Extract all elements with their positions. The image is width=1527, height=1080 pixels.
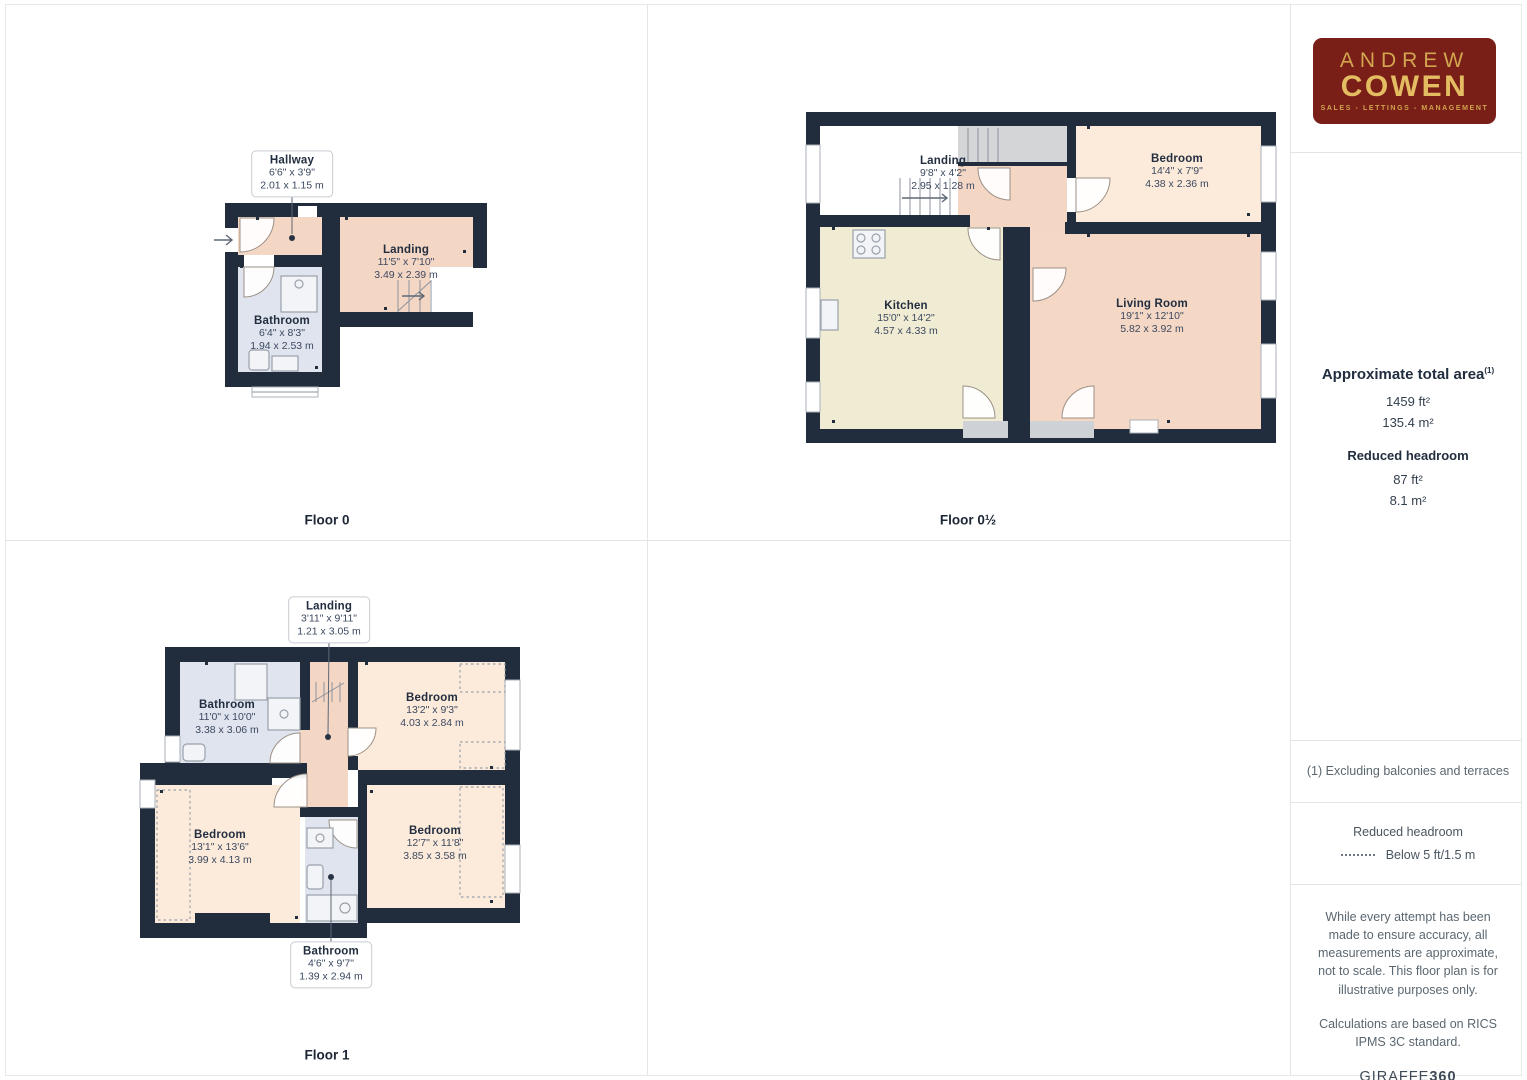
logo-name-bottom: COWEN <box>1341 71 1469 103</box>
floor0-wall-notch <box>298 206 317 217</box>
brand-text-bold: 360 <box>1429 1069 1456 1080</box>
bedroom-top-right-label: Bedroom 13'2" x 9'3" 4.03 x 2.84 m <box>400 692 464 730</box>
shower-tray-icon <box>272 356 298 371</box>
bathroom-label: Bathroom 6'4" x 8'3" 1.94 x 2.53 m <box>250 315 314 353</box>
floor0half-panel: Landing 9'8" x 4'2" 2.95 x 1.28 m Bedroo… <box>647 0 1290 540</box>
area-value-ft: 1459 ft² <box>1290 391 1526 412</box>
area-title-text: Approximate total area <box>1322 366 1485 383</box>
disclaimer-text-1: While every attempt has been made to ens… <box>1309 908 1507 999</box>
area-summary: Approximate total area(1) 1459 ft² 135.4… <box>1290 366 1526 511</box>
area-value-m: 135.4 m² <box>1290 412 1526 433</box>
headroom-value-m: 8.1 m² <box>1290 490 1526 511</box>
agency-logo: ANDREW COWEN SALES - LETTINGS - MANAGEME… <box>1313 38 1496 124</box>
bedroom-label: Bedroom 14'4" x 7'9" 4.38 x 2.36 m <box>1145 153 1209 191</box>
boiler-icon <box>821 300 838 330</box>
sink-icon <box>295 280 303 288</box>
info-sidebar: ANDREW COWEN SALES - LETTINGS - MANAGEME… <box>1290 0 1526 1080</box>
bathroom-bottom-label: Bathroom 4'6" x 9'7" 1.39 x 2.94 m <box>290 941 372 988</box>
floor0half-plan-drawing <box>647 0 1290 540</box>
floorplan-sheet: Hallway 6'6" x 3'9" 2.01 x 1.15 m Landin… <box>0 0 1527 1080</box>
headroom-legend-value: Below 5 ft/1.5 m <box>1386 848 1476 862</box>
floor0-panel: Hallway 6'6" x 3'9" 2.01 x 1.15 m Landin… <box>0 0 647 540</box>
giraffe360-logo: GIRAFFE360 <box>1290 1069 1526 1080</box>
floor0-title: Floor 0 <box>304 513 349 528</box>
dotted-line-icon <box>1341 854 1375 856</box>
floor0half-title: Floor 0½ <box>940 513 996 528</box>
landing-label: Landing 11'5" x 7'10" 3.49 x 2.39 m <box>374 244 438 282</box>
floor1-panel: Landing 3'11" x 9'11" 1.21 x 3.05 m Bath… <box>0 540 647 1075</box>
bathtub-icon <box>235 664 267 700</box>
headroom-title: Reduced headroom <box>1290 448 1526 463</box>
logo-name-top: ANDREW <box>1340 50 1469 71</box>
landing-leader-dot <box>325 734 331 740</box>
bedroom-bottom-right-label: Bedroom 12'7" x 11'8" 3.85 x 3.58 m <box>403 825 467 863</box>
floor0-plan-drawing <box>0 0 647 540</box>
headroom-legend-title: Reduced headroom <box>1353 825 1463 839</box>
sidebar-divider-1 <box>1290 152 1521 153</box>
toilet-icon <box>183 744 205 761</box>
bathroom-top-label: Bathroom 11'0" x 10'0" 3.38 x 3.06 m <box>195 699 259 737</box>
floor1-title: Floor 1 <box>304 1048 349 1063</box>
landing-label: Landing 9'8" x 4'2" 2.95 x 1.28 m <box>911 155 975 193</box>
hallway-label: Hallway 6'6" x 3'9" 2.01 x 1.15 m <box>251 150 333 197</box>
hallway-leader-dot <box>289 235 295 241</box>
bedroom-bottom-left-label: Bedroom 13'1" x 13'6" 3.99 x 4.13 m <box>188 829 252 867</box>
entry-arrow-icon <box>214 235 232 245</box>
headroom-value-ft: 87 ft² <box>1290 469 1526 490</box>
exclusion-note: (1) Excluding balconies and terraces <box>1290 740 1526 802</box>
living-room-label: Living Room 19'1" x 12'10" 5.82 x 3.92 m <box>1116 298 1188 336</box>
bathroom-leader-dot <box>328 874 334 880</box>
headroom-legend: Reduced headroom Below 5 ft/1.5 m <box>1290 802 1526 884</box>
disclaimer-text-2: Calculations are based on RICS IPMS 3C s… <box>1309 1015 1507 1051</box>
landing-label: Landing 3'11" x 9'11" 1.21 x 3.05 m <box>288 596 370 643</box>
stove-icon <box>853 230 885 258</box>
brand-text: GIRAFFE <box>1359 1069 1429 1080</box>
area-title: Approximate total area(1) <box>1290 366 1526 383</box>
toilet-icon <box>307 865 323 889</box>
headroom-legend-row: Below 5 ft/1.5 m <box>1341 848 1476 862</box>
logo-tagline: SALES - LETTINGS - MANAGEMENT <box>1321 105 1489 112</box>
area-title-superscript: (1) <box>1484 366 1494 375</box>
disclaimer-block: While every attempt has been made to ens… <box>1290 884 1526 1080</box>
floor0-entry-steps <box>252 387 318 397</box>
kitchen-label: Kitchen 15'0" x 14'2" 4.57 x 4.33 m <box>874 300 938 338</box>
